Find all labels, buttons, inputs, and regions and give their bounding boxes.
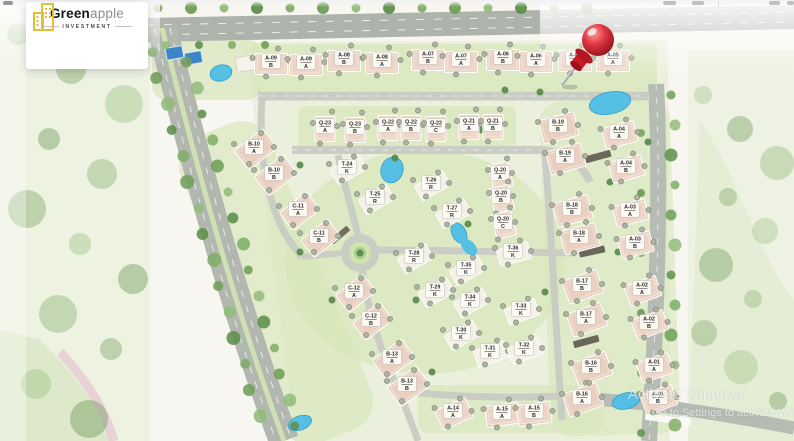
unit-letter: A (459, 61, 463, 67)
building-id: A-08 (376, 54, 388, 60)
building-id: Q-22 (382, 119, 394, 125)
browser-icon[interactable] (3, 1, 13, 5)
unit-letter: A (451, 413, 455, 419)
building-id: T-28 (409, 250, 420, 256)
building-id: A-08 (338, 52, 350, 58)
building-id: T-34 (465, 294, 476, 300)
unit-letter: A (652, 367, 656, 373)
unit-letter: B (633, 244, 637, 250)
unit-letter: A (534, 61, 538, 67)
unit-letter: A (304, 64, 308, 70)
building-id: B-17 (580, 311, 592, 317)
unit-letter: K (459, 335, 463, 341)
unit-letter: A (500, 414, 504, 420)
building-id: T-32 (519, 342, 530, 348)
unit-letter: A (252, 149, 256, 155)
unit-letter: A (323, 128, 327, 134)
building-id: B-18 (573, 230, 585, 236)
unit-letter: K (488, 353, 492, 359)
unit-letter: B (369, 321, 373, 327)
unit-letter: A (352, 293, 356, 299)
building-id: B-19 (552, 119, 564, 125)
building-id: B-16 (576, 391, 588, 397)
unit-letter: A (563, 158, 567, 164)
unit-letter: A (380, 62, 384, 68)
unit-letter: K (468, 302, 472, 308)
masterplan-viewer: A-09BA-09AA-08BA-08AA-07BA-07AA-06BA-06A… (0, 0, 794, 441)
building-id: T-30 (456, 327, 467, 333)
unit-letter: R (450, 213, 454, 219)
building-id: C-11 (292, 203, 303, 209)
building-id: T-33 (516, 303, 527, 309)
building-id: B-17 (576, 278, 588, 284)
unit-letter: A (296, 211, 300, 217)
unit-letter: A (580, 399, 584, 405)
building-id: B-18 (566, 202, 578, 208)
building-id: T-31 (485, 345, 496, 351)
building-id: C-12 (348, 285, 360, 291)
building-id: B-16 (585, 360, 597, 366)
unit-letter: R (429, 185, 433, 191)
unit-letter: A (390, 359, 394, 365)
building-id: C-11 (313, 230, 324, 236)
brand-logo-card: Greenapple INVESTMENT (26, 2, 148, 69)
unit-letter: B (269, 63, 273, 69)
building-id: A-04 (613, 126, 625, 132)
unit-letter: C (434, 128, 438, 134)
unit-letter: B (353, 129, 357, 135)
unit-letter: B (317, 238, 321, 244)
brand-name-light: apple (90, 6, 124, 21)
browser-icon[interactable] (692, 1, 704, 5)
unit-letter: B (501, 59, 505, 65)
unit-letter: B (491, 126, 495, 132)
building-id: Q-21 (463, 118, 475, 124)
unit-letter: B (624, 168, 628, 174)
browser-icon[interactable] (663, 1, 676, 5)
brand-name: Greenapple (50, 7, 124, 21)
unit-letter: B (499, 198, 503, 204)
building-id: T-27 (447, 205, 458, 211)
unit-letter: K (519, 311, 523, 317)
building-id: B-10 (268, 167, 280, 173)
unit-letter: K (433, 292, 437, 298)
building-id: T-24 (342, 161, 353, 167)
building-id: B-13 (401, 378, 413, 384)
unit-letter: B (570, 210, 574, 216)
unit-letter: B (272, 175, 276, 181)
unit-letter: B (409, 127, 413, 133)
unit-letter: C (501, 224, 505, 230)
building-id: A-07 (455, 53, 467, 59)
unit-letter: B (647, 324, 651, 330)
building-id: T-35 (461, 262, 472, 268)
tagline-dash (115, 26, 132, 27)
building-id: Q-23 (319, 120, 331, 126)
unit-letter: A (386, 127, 390, 133)
unit-letter: A (467, 126, 471, 132)
building-id: Q-22 (430, 120, 442, 126)
activate-windows-watermark-sub: Go to Settings to activate Windows. (652, 407, 794, 419)
building-id: A-06 (497, 51, 509, 57)
unit-letter: A (498, 175, 502, 181)
browser-icon[interactable] (787, 1, 794, 5)
unit-letter: B (405, 386, 409, 392)
unit-letter: A (584, 319, 588, 325)
building-id: A-01 (648, 359, 660, 365)
building-id: T-25 (370, 191, 381, 197)
building-id: A-09 (265, 55, 277, 61)
unit-letter: R (412, 258, 416, 264)
building-id: A-14 (447, 405, 459, 411)
building-id: A-15 (496, 406, 508, 412)
unit-letter: A (617, 134, 621, 140)
building-id: A-03 (629, 236, 641, 242)
building-id: Q-20 (495, 190, 507, 196)
unit-letter: R (373, 199, 377, 205)
building-id: Q-20 (497, 216, 509, 222)
unit-letter: A (628, 212, 632, 218)
building-id: T-29 (430, 284, 441, 290)
building-id: A-03 (624, 204, 636, 210)
building-id: Q-23 (349, 121, 361, 127)
building-id: A-02 (643, 316, 655, 322)
building-id: T-26 (426, 177, 437, 183)
building-id: A-07 (422, 51, 434, 57)
unit-letter: B (532, 413, 536, 419)
building-id: B-19 (559, 150, 571, 156)
unit-letter: B (426, 59, 430, 65)
building-id: A-15 (528, 405, 540, 411)
building-id: A-02 (636, 282, 648, 288)
building-id: T-36 (508, 245, 519, 251)
unit-letter: K (345, 169, 349, 175)
unit-letter: K (464, 270, 468, 276)
building-id: B-10 (248, 141, 260, 147)
building-id: C-12 (365, 313, 377, 319)
activate-windows-watermark: Activate Windows (628, 386, 746, 403)
unit-letter: B (556, 127, 560, 133)
building-id: Q-21 (487, 118, 499, 124)
unit-letter: B (589, 368, 593, 374)
building-id: B-13 (386, 351, 398, 357)
building-id: Q-20 (494, 167, 506, 173)
toolbar-divider (718, 1, 719, 7)
unit-letter: A (640, 290, 644, 296)
unit-letter: K (511, 253, 515, 259)
building-id: Q-22 (405, 119, 417, 125)
unit-letter: B (342, 60, 346, 66)
unit-letter: B (580, 286, 584, 292)
unit-letter: K (522, 350, 526, 356)
unit-letter: A (577, 238, 581, 244)
building-id: A-09 (300, 56, 312, 62)
building-id: A-04 (620, 160, 632, 166)
browser-icon[interactable] (769, 1, 780, 5)
